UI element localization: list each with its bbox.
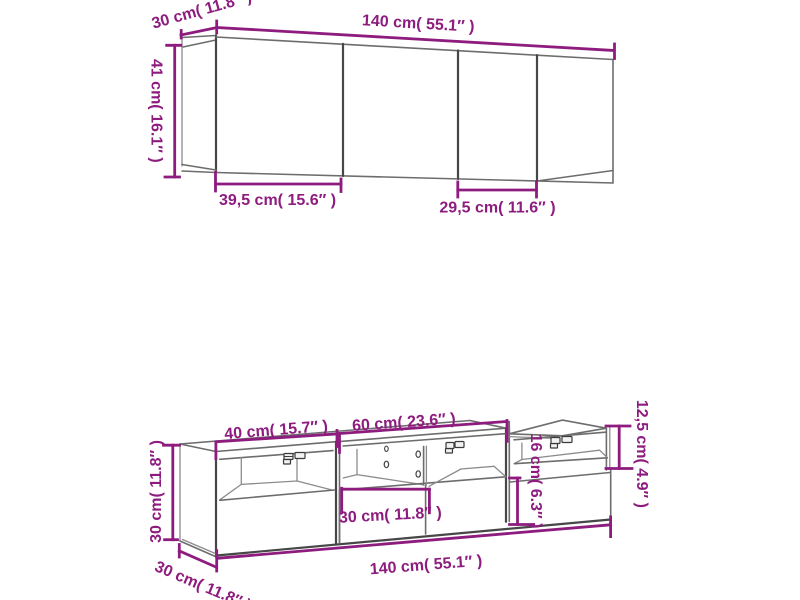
svg-text:39,5 cm( 15.6″ ): 39,5 cm( 15.6″ ) (219, 192, 336, 209)
svg-text:12,5 cm( 4.9″ ): 12,5 cm( 4.9″ ) (633, 400, 650, 508)
svg-text:16 cm( 6.3″ ): 16 cm( 6.3″ ) (527, 434, 544, 529)
svg-text:29,5 cm( 11.6″ ): 29,5 cm( 11.6″ ) (439, 200, 555, 217)
svg-text:41 cm( 16.1″ ): 41 cm( 16.1″ ) (148, 59, 165, 163)
svg-text:30 cm( 11.8″ ): 30 cm( 11.8″ ) (148, 440, 165, 543)
